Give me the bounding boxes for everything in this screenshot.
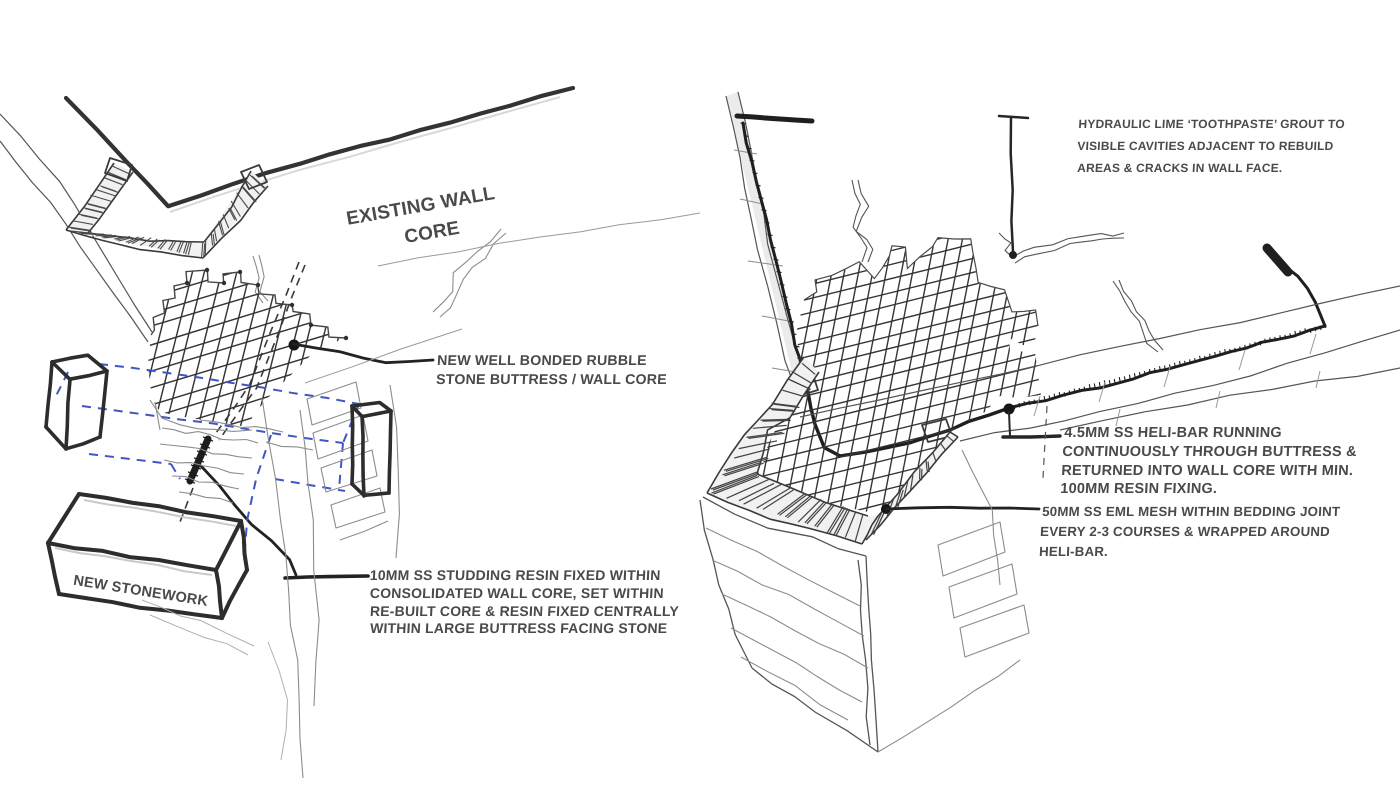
svg-text:RETURNED INTO WALL CORE WITH M: RETURNED INTO WALL CORE WITH MIN. (1061, 463, 1354, 479)
svg-text:4.5MM SS HELI-BAR RUNNING: 4.5MM SS HELI-BAR RUNNING (1064, 425, 1282, 441)
svg-text:WITHIN LARGE BUTTRESS FACING S: WITHIN LARGE BUTTRESS FACING STONE (370, 620, 668, 636)
svg-text:CONSOLIDATED WALL CORE, SET WI: CONSOLIDATED WALL CORE, SET WITHIN (370, 585, 665, 601)
svg-text:EVERY 2-3 COURSES & WRAPPED AR: EVERY 2-3 COURSES & WRAPPED AROUND (1040, 524, 1331, 539)
svg-text:HELI-BAR.: HELI-BAR. (1039, 544, 1109, 559)
svg-text:HYDRAULIC LIME ‘TOOTHPASTE’ GR: HYDRAULIC LIME ‘TOOTHPASTE’ GROUT TO (1078, 117, 1345, 131)
svg-text:STONE BUTTRESS / WALL CORE: STONE BUTTRESS / WALL CORE (436, 372, 668, 388)
svg-text:RE-BUILT CORE & RESIN FIXED CE: RE-BUILT CORE & RESIN FIXED CENTRALLY (370, 603, 680, 619)
svg-text:10MM SS STUDDING RESIN FIXED W: 10MM SS STUDDING RESIN FIXED WITHIN (369, 567, 661, 583)
svg-text:50MM SS EML MESH WITHIN BEDDIN: 50MM SS EML MESH WITHIN BEDDING JOINT (1042, 504, 1341, 519)
svg-text:AREAS & CRACKS IN WALL FACE.: AREAS & CRACKS IN WALL FACE. (1077, 161, 1283, 175)
svg-text:100MM RESIN FIXING.: 100MM RESIN FIXING. (1060, 481, 1218, 497)
svg-text:VISIBLE CAVITIES ADJACENT TO R: VISIBLE CAVITIES ADJACENT TO REBUILD (1077, 139, 1334, 153)
svg-text:NEW WELL BONDED RUBBLE: NEW WELL BONDED RUBBLE (437, 353, 648, 369)
svg-text:CONTINUOUSLY THROUGH BUTTRESS: CONTINUOUSLY THROUGH BUTTRESS & (1062, 444, 1358, 460)
